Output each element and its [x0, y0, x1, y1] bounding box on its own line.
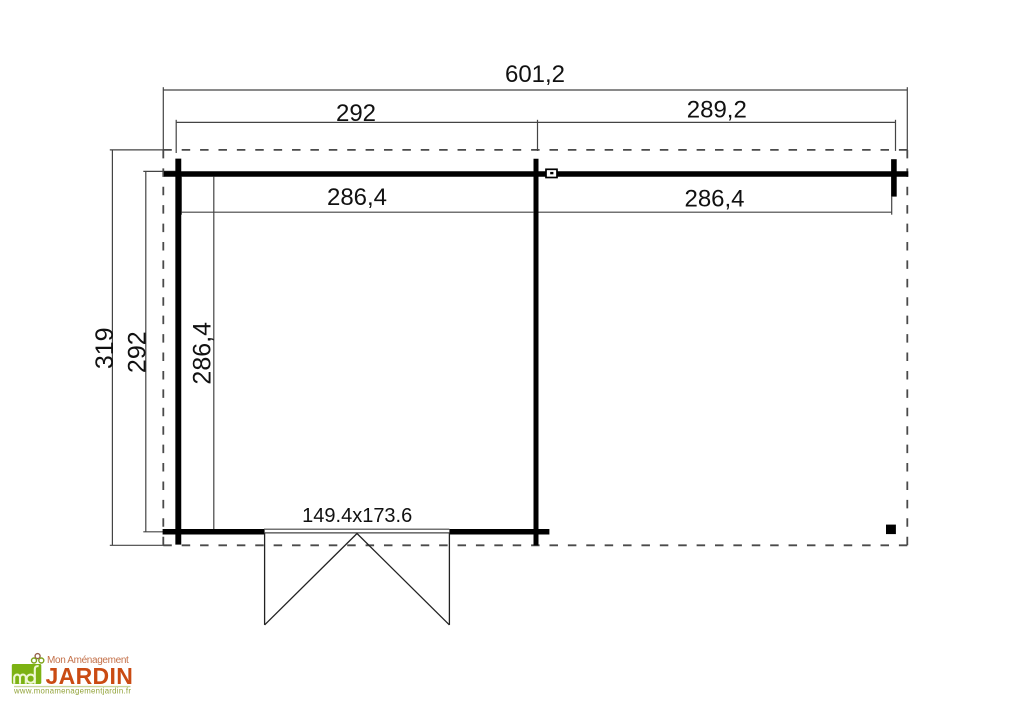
svg-text:www.monamenagementjardin.fr: www.monamenagementjardin.fr: [13, 687, 131, 696]
svg-text:149.4x173.6: 149.4x173.6: [302, 505, 412, 527]
svg-text:JARDIN: JARDIN: [46, 663, 134, 689]
svg-text:289,2: 289,2: [687, 97, 747, 124]
svg-text:601,2: 601,2: [505, 61, 565, 88]
svg-text:286,4: 286,4: [327, 184, 387, 211]
svg-text:319: 319: [91, 327, 119, 369]
svg-text:286,4: 286,4: [684, 186, 744, 213]
svg-text:286,4: 286,4: [188, 322, 216, 385]
svg-text:292: 292: [336, 100, 376, 127]
svg-text:292: 292: [124, 331, 152, 373]
